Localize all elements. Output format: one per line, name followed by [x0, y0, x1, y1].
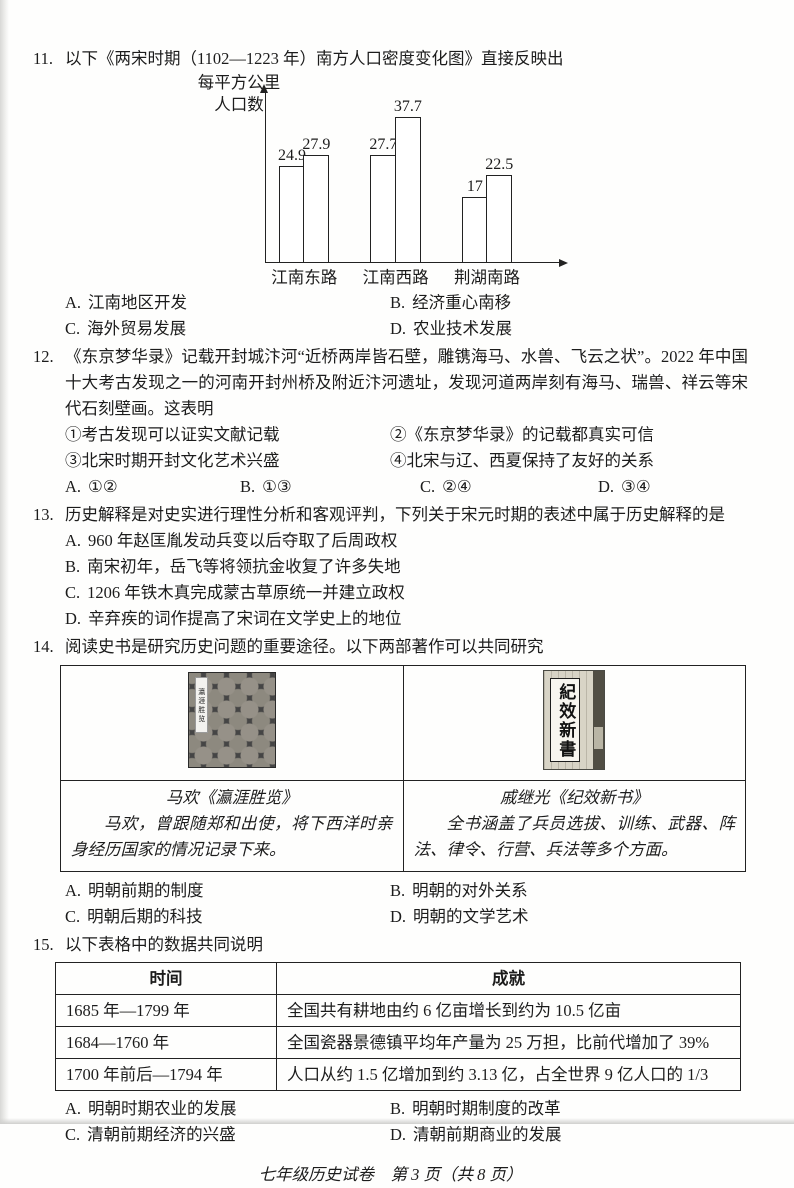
x-axis-category: 江南东路	[271, 265, 337, 291]
bar-value-label: 27.7	[369, 132, 397, 158]
option-c: C.1206 年铁木真完成蒙古草原统一并建立政权	[65, 580, 748, 606]
question-15: 15. 以下表格中的数据共同说明 时间 成就 1685 年—1799 年 全国共…	[33, 932, 748, 1148]
question-14: 14. 阅读史书是研究历史问题的重要途径。以下两部著作可以共同研究 瀛涯胜览 紀…	[33, 634, 748, 930]
question-stem: 以下《两宋时期（1102—1223 年）南方人口密度变化图》直接反映出	[65, 46, 748, 72]
question-stem: 历史解释是对史实进行理性分析和客观评判，下列关于宋元时期的表述中属于历史解释的是	[65, 502, 748, 528]
question-number: 14.	[33, 634, 65, 660]
bar-group-jiangnan-west: 27.7 37.7 江南西路	[370, 117, 420, 262]
q14-right-desc-cell: 戚继光《纪效新书》 全书涵盖了兵员选拔、训练、武器、阵法、律令、行营、兵法等多个…	[403, 781, 746, 872]
q13-options: A.960 年赵匡胤发动兵变以后夺取了后周政权 B.南宋初年，岳飞等将领抗金收复…	[65, 528, 748, 632]
bar: 37.7	[395, 117, 421, 262]
option-d: D.清朝前期商业的发展	[390, 1122, 748, 1148]
question-number: 15.	[33, 932, 65, 958]
option-c: C.明朝后期的科技	[65, 904, 390, 930]
bar: 17	[462, 197, 488, 262]
question-stem: 《东京梦华录》记载开封城汴河“近桥两岸皆石壁，雕镌海马、水兽、飞云之状”。202…	[65, 344, 748, 422]
statement-4: ④北宋与辽、西夏保持了友好的关系	[390, 448, 748, 474]
book-caption: 马欢《瀛涯胜览》	[71, 785, 393, 811]
option-a: A.江南地区开发	[65, 290, 390, 316]
bar-value-label: 22.5	[485, 152, 513, 178]
book-description: 全书涵盖了兵员选拔、训练、武器、阵法、律令、行营、兵法等多个方面。	[414, 811, 736, 863]
option-c: C.海外贸易发展	[65, 316, 390, 342]
option-c: C.②④	[420, 474, 598, 500]
question-13: 13. 历史解释是对史实进行理性分析和客观评判，下列关于宋元时期的表述中属于历史…	[33, 502, 748, 632]
option-b: B.经济重心南移	[390, 290, 748, 316]
statement-2: ②《东京梦华录》的记载都真实可信	[390, 422, 748, 448]
book-title-panel: 紀效新書	[550, 678, 580, 762]
bar: 24.9	[279, 166, 305, 262]
bar-group-jinghu-south: 17 22.5 荆湖南路	[462, 175, 512, 262]
chart-plot-area: 24.9 27.9 江南东路 27.7 37	[265, 90, 562, 263]
bar-value-label: 37.7	[394, 94, 422, 120]
option-c: C.清朝前期经济的兴盛	[65, 1122, 390, 1148]
q14-right-image-cell: 紀效新書	[403, 666, 746, 781]
option-d: D.农业技术发展	[390, 316, 748, 342]
book-title-strip: 瀛涯胜览	[195, 677, 208, 733]
question-stem: 以下表格中的数据共同说明	[65, 932, 748, 958]
bar-value-label: 17	[467, 174, 483, 200]
column-header-achievement: 成就	[277, 963, 741, 995]
q11-options: A.江南地区开发 B.经济重心南移 C.海外贸易发展 D.农业技术发展	[65, 290, 748, 342]
option-d: D.③④	[598, 474, 748, 500]
x-axis-category: 江南西路	[363, 265, 429, 291]
population-density-chart: 每平方公里 人口数 24.9 27.9 江南东路	[65, 76, 748, 288]
bar: 27.7	[370, 155, 396, 262]
book-caption: 戚继光《纪效新书》	[414, 785, 736, 811]
bar: 27.9	[303, 155, 329, 262]
option-b: B.南宋初年，岳飞等将领抗金收复了许多失地	[65, 554, 748, 580]
book-cover-jixiao-xinshu: 紀效新書	[543, 670, 605, 770]
option-a: A.明朝时期农业的发展	[65, 1096, 390, 1122]
bar-value-label: 27.9	[302, 132, 330, 158]
question-11: 11. 以下《两宋时期（1102—1223 年）南方人口密度变化图》直接反映出 …	[33, 46, 748, 342]
question-number: 11.	[33, 46, 65, 72]
option-b: B.明朝时期制度的改革	[390, 1096, 748, 1122]
book-cover-yingya-shenglan: 瀛涯胜览	[188, 672, 276, 768]
option-a: A.明朝前期的制度	[65, 878, 390, 904]
table-header-row: 时间 成就	[56, 963, 741, 995]
q14-books-table: 瀛涯胜览 紀效新書 马欢《瀛涯胜览》 马欢，曾跟随郑和出使，将	[60, 665, 746, 872]
table-row: 1700 年前后—1794 年 人口从约 1.5 亿增加到约 3.13 亿，占全…	[56, 1059, 741, 1091]
option-d: D.明朝的文学艺术	[390, 904, 748, 930]
q12-statements: ①考古发现可以证实文献记载 ②《东京梦华录》的记载都真实可信 ③北宋时期开封文化…	[65, 422, 748, 474]
page-footer: 七年级历史试卷 第 3 页（共 8 页）	[33, 1162, 748, 1188]
statement-3: ③北宋时期开封文化艺术兴盛	[65, 448, 390, 474]
question-number: 12.	[33, 344, 65, 370]
option-a: A.960 年赵匡胤发动兵变以后夺取了后周政权	[65, 528, 748, 554]
book-description: 马欢，曾跟随郑和出使，将下西洋时亲身经历国家的情况记录下来。	[71, 811, 393, 863]
q15-data-table: 时间 成就 1685 年—1799 年 全国共有耕地由约 6 亿亩增长到约为 1…	[55, 962, 741, 1091]
statement-1: ①考古发现可以证实文献记载	[65, 422, 390, 448]
q15-options: A.明朝时期农业的发展 B.明朝时期制度的改革 C.清朝前期经济的兴盛 D.清朝…	[65, 1096, 748, 1148]
option-b: B.①③	[240, 474, 420, 500]
question-12: 12. 《东京梦华录》记载开封城汴河“近桥两岸皆石壁，雕镌海马、水兽、飞云之状”…	[33, 344, 748, 500]
option-b: B.明朝的对外关系	[390, 878, 748, 904]
option-a: A.①②	[65, 474, 240, 500]
q12-options: A.①② B.①③ C.②④ D.③④	[65, 474, 748, 500]
table-row: 1685 年—1799 年 全国共有耕地由约 6 亿亩增长到约为 10.5 亿亩	[56, 995, 741, 1027]
x-axis-category: 荆湖南路	[454, 265, 520, 291]
q14-options: A.明朝前期的制度 B.明朝的对外关系 C.明朝后期的科技 D.明朝的文学艺术	[65, 878, 748, 930]
option-d: D.辛弃疾的词作提高了宋词在文学史上的地位	[65, 606, 748, 632]
table-row: 1684—1760 年 全国瓷器景德镇平均年产量为 25 万担，比前代增加了 3…	[56, 1027, 741, 1059]
exam-page: 11. 以下《两宋时期（1102—1223 年）南方人口密度变化图》直接反映出 …	[0, 0, 794, 1188]
bar: 22.5	[486, 175, 512, 262]
book-spine-label	[594, 727, 603, 749]
book-spine	[593, 671, 604, 769]
q14-left-image-cell: 瀛涯胜览	[61, 666, 404, 781]
question-stem: 阅读史书是研究历史问题的重要途径。以下两部著作可以共同研究	[65, 634, 748, 660]
q14-left-desc-cell: 马欢《瀛涯胜览》 马欢，曾跟随郑和出使，将下西洋时亲身经历国家的情况记录下来。	[61, 781, 404, 872]
bar-group-jiangnan-east: 24.9 27.9 江南东路	[279, 155, 329, 262]
column-header-time: 时间	[56, 963, 277, 995]
question-number: 13.	[33, 502, 65, 528]
